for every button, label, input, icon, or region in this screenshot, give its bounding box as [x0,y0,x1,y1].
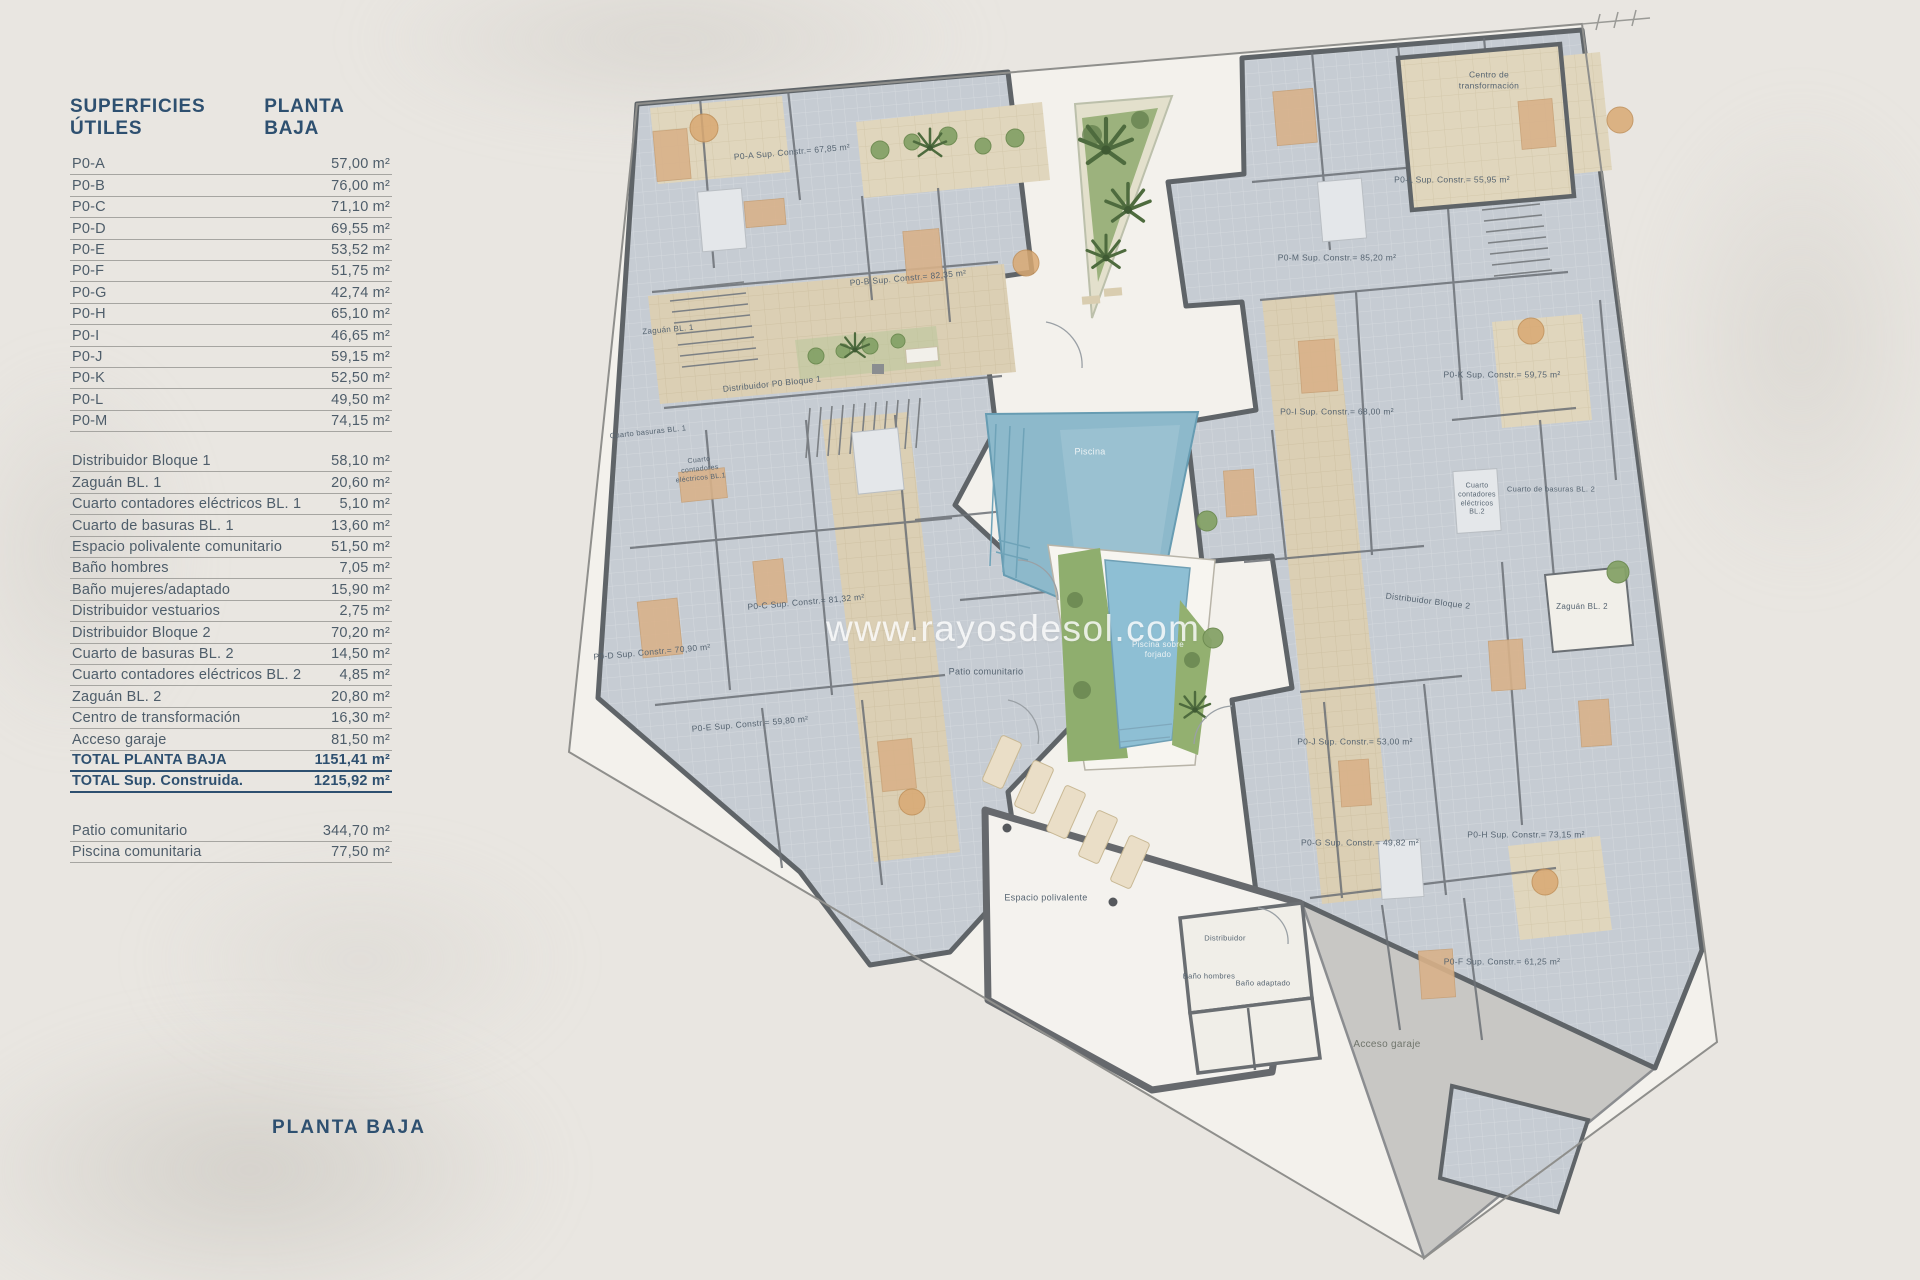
raised-pool [1048,545,1215,770]
table-row: P0-M74,15 m² [70,411,392,432]
row-value: 51,50 m² [331,539,390,555]
row-label: Cuarto de basuras BL. 1 [72,518,234,534]
row-value: 344,70 m² [323,823,390,839]
row-value: 53,52 m² [331,242,390,258]
row-value: 20,60 m² [331,475,390,491]
table-row: Centro de transformación16,30 m² [70,708,392,729]
row-label: P0-J [72,349,103,365]
row-value: 74,15 m² [331,413,390,429]
table-row: P0-D69,55 m² [70,218,392,239]
table-row: Piscina comunitaria77,50 m² [70,842,392,863]
plan-caption: PLANTA BAJA [272,1117,426,1139]
row-label: P0-E [72,242,105,258]
row-label: P0-A [72,156,105,172]
row-label: Baño hombres [72,560,169,576]
row-label: P0-I [72,328,99,344]
table-row: Baño hombres7,05 m² [70,558,392,579]
row-label: P0-H [72,306,106,322]
row-label: Cuarto de basuras BL. 2 [72,646,234,662]
row-label: Baño mujeres/adaptado [72,582,230,598]
row-label: P0-C [72,199,106,215]
table-row: Distribuidor Bloque 270,20 m² [70,622,392,643]
row-value: 77,50 m² [331,844,390,860]
row-value: 46,65 m² [331,328,390,344]
row-label: Acceso garaje [72,732,167,748]
table-row: P0-F51,75 m² [70,261,392,282]
row-label: P0-G [72,285,107,301]
row-label: TOTAL Sup. Construida. [72,773,243,789]
table-row: P0-G42,74 m² [70,282,392,303]
apartment-rows: P0-A57,00 m²P0-B76,00 m²P0-C71,10 m²P0-D… [70,154,392,432]
row-value: 57,00 m² [331,156,390,172]
row-value: 58,10 m² [331,453,390,469]
total-row: TOTAL Sup. Construida.1215,92 m² [70,772,392,793]
row-value: 15,90 m² [331,582,390,598]
table-row: P0-E53,52 m² [70,240,392,261]
row-label: P0-L [72,392,103,408]
row-value: 76,00 m² [331,178,390,194]
row-value: 14,50 m² [331,646,390,662]
table-row: Distribuidor vestuarios2,75 m² [70,601,392,622]
table-row: Zaguán BL. 120,60 m² [70,472,392,493]
row-value: 2,75 m² [339,603,390,619]
bench [1082,295,1101,305]
table-row: Baño mujeres/adaptado15,90 m² [70,579,392,600]
row-value: 49,50 m² [331,392,390,408]
row-value: 52,50 m² [331,370,390,386]
row-value: 7,05 m² [339,560,390,576]
table-row: Cuarto de basuras BL. 113,60 m² [70,515,392,536]
row-value: 81,50 m² [331,732,390,748]
row-label: Distribuidor vestuarios [72,603,220,619]
table-row: P0-A57,00 m² [70,154,392,175]
common-rows: Distribuidor Bloque 158,10 m²Zaguán BL. … [70,451,392,793]
table-row: Cuarto contadores eléctricos BL. 15,10 m… [70,494,392,515]
table-row: Cuarto contadores eléctricos BL. 24,85 m… [70,665,392,686]
row-value: 69,55 m² [331,221,390,237]
row-label: Distribuidor Bloque 2 [72,625,211,641]
table-row: P0-B76,00 m² [70,175,392,196]
row-value: 5,10 m² [339,496,390,512]
row-label: Distribuidor Bloque 1 [72,453,211,469]
table-title: SUPERFICIES ÚTILES [70,96,264,140]
row-label: P0-B [72,178,105,194]
table-row: P0-H65,10 m² [70,304,392,325]
outdoor-rows: Patio comunitario344,70 m²Piscina comuni… [70,820,392,863]
row-label: Patio comunitario [72,823,187,839]
bench [905,347,938,364]
row-label: Piscina comunitaria [72,844,202,860]
row-label: TOTAL PLANTA BAJA [72,752,227,768]
row-label: Cuarto contadores eléctricos BL. 2 [72,667,301,683]
survey-ticks [1582,10,1650,30]
row-value: 1215,92 m² [314,773,390,789]
row-label: Zaguán BL. 2 [72,689,161,705]
terrace [1508,836,1612,940]
row-value: 51,75 m² [331,263,390,279]
row-label: P0-K [72,370,105,386]
service-rooms [1180,903,1320,1073]
table-row: P0-J59,15 m² [70,347,392,368]
table-row: P0-L49,50 m² [70,389,392,410]
row-label: P0-F [72,263,104,279]
row-label: Centro de transformación [72,710,240,726]
table-row: Acceso garaje81,50 m² [70,729,392,750]
row-label: P0-D [72,221,106,237]
row-label: Cuarto contadores eléctricos BL. 1 [72,496,301,512]
row-value: 71,10 m² [331,199,390,215]
table-row: Zaguán BL. 220,80 m² [70,686,392,707]
row-value: 65,10 m² [331,306,390,322]
table-row: Patio comunitario344,70 m² [70,820,392,841]
table-row: Distribuidor Bloque 158,10 m² [70,451,392,472]
areas-table: SUPERFICIES ÚTILES PLANTA BAJA P0-A57,00… [70,96,392,863]
planter [872,364,884,374]
row-value: 16,30 m² [331,710,390,726]
row-label: Espacio polivalente comunitario [72,539,282,555]
table-row: Cuarto de basuras BL. 214,50 m² [70,644,392,665]
watermark: www.rayosdesol.com [826,608,1201,650]
table-row: P0-K52,50 m² [70,368,392,389]
table-header: SUPERFICIES ÚTILES PLANTA BAJA [70,96,392,140]
table-header-right: PLANTA BAJA [264,96,392,140]
total-row: TOTAL PLANTA BAJA1151,41 m² [70,751,392,772]
page-canvas: P0-A Sup. Constr.= 67,85 m²P0-B Sup. Con… [0,0,1920,1280]
row-value: 4,85 m² [339,667,390,683]
row-value: 70,20 m² [331,625,390,641]
row-label: P0-M [72,413,107,429]
table-row: P0-I46,65 m² [70,325,392,346]
bench [1104,287,1123,297]
table-row: P0-C71,10 m² [70,197,392,218]
row-value: 1151,41 m² [315,752,390,768]
row-value: 42,74 m² [331,285,390,301]
row-value: 20,80 m² [331,689,390,705]
row-label: Zaguán BL. 1 [72,475,161,491]
row-value: 13,60 m² [331,518,390,534]
table-row: Espacio polivalente comunitario51,50 m² [70,537,392,558]
row-value: 59,15 m² [331,349,390,365]
